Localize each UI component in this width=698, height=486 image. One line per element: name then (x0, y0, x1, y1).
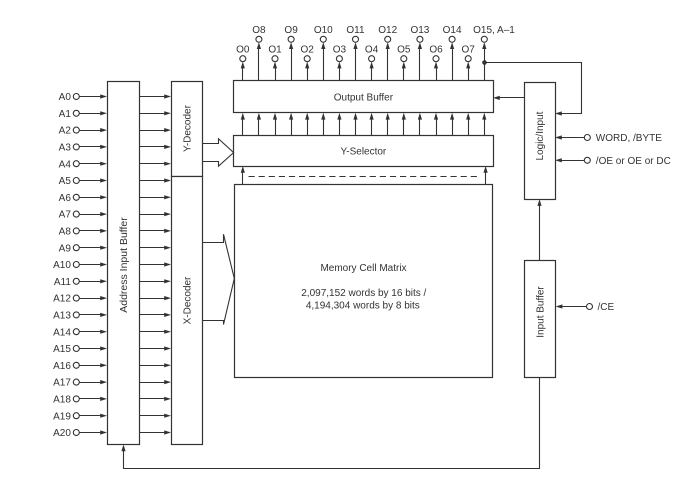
svg-text:A9: A9 (59, 243, 72, 254)
svg-text:A1: A1 (59, 109, 72, 120)
svg-text:A15: A15 (53, 344, 71, 355)
svg-text:/OE or OE or DC: /OE or OE or DC (596, 156, 671, 167)
svg-text:O5: O5 (397, 45, 411, 56)
svg-text:A8: A8 (59, 227, 72, 238)
svg-text:O13: O13 (410, 25, 429, 36)
svg-text:O14: O14 (443, 25, 462, 36)
svg-text:A4: A4 (59, 159, 72, 170)
svg-text:X-Decoder: X-Decoder (182, 276, 193, 324)
svg-text:A10: A10 (53, 260, 71, 271)
svg-text:WORD, /BYTE: WORD, /BYTE (596, 133, 662, 144)
svg-text:A17: A17 (53, 378, 71, 389)
svg-text:A16: A16 (53, 361, 71, 372)
svg-text:Address Input Buffer: Address Input Buffer (118, 217, 130, 313)
svg-text:A13: A13 (53, 311, 71, 322)
svg-text:Memory Cell Matrix: Memory Cell Matrix (320, 263, 406, 274)
svg-text:A5: A5 (59, 176, 72, 187)
svg-text:O4: O4 (365, 45, 379, 56)
svg-text:A2: A2 (59, 126, 72, 137)
svg-text:A14: A14 (53, 327, 71, 338)
svg-text:O6: O6 (429, 45, 443, 56)
svg-text:Logic/Input: Logic/Input (535, 111, 546, 160)
svg-text:A11: A11 (54, 277, 71, 288)
svg-text:A0: A0 (59, 92, 72, 103)
svg-text:A6: A6 (59, 193, 72, 204)
svg-text:A18: A18 (53, 395, 71, 406)
svg-text:O10: O10 (314, 25, 333, 36)
svg-text:A20: A20 (53, 428, 71, 439)
svg-text:O9: O9 (284, 25, 298, 36)
svg-text:O8: O8 (252, 25, 266, 36)
svg-text:A12: A12 (53, 294, 71, 305)
svg-text:2,097,152 words by 16 bits /: 2,097,152 words by 16 bits / (301, 288, 426, 299)
svg-text:Y-Selector: Y-Selector (341, 146, 387, 157)
svg-text:A3: A3 (59, 143, 72, 154)
svg-text:Y-Decoder: Y-Decoder (182, 104, 193, 152)
svg-text:O3: O3 (333, 45, 347, 56)
svg-text:4,194,304 words by 8 bits: 4,194,304 words by 8 bits (306, 301, 420, 312)
svg-text:Input Buffer: Input Buffer (535, 286, 546, 338)
svg-text:O11: O11 (346, 25, 365, 36)
svg-text:A7: A7 (59, 210, 72, 221)
svg-text:Output Buffer: Output Buffer (334, 93, 394, 104)
svg-text:O7: O7 (462, 45, 476, 56)
svg-text:O15, A–1: O15, A–1 (473, 25, 515, 36)
svg-text:/CE: /CE (598, 302, 615, 313)
svg-text:O12: O12 (378, 25, 397, 36)
svg-text:A19: A19 (53, 411, 71, 422)
svg-text:O0: O0 (236, 45, 250, 56)
svg-text:O2: O2 (301, 45, 315, 56)
svg-text:O1: O1 (268, 45, 282, 56)
